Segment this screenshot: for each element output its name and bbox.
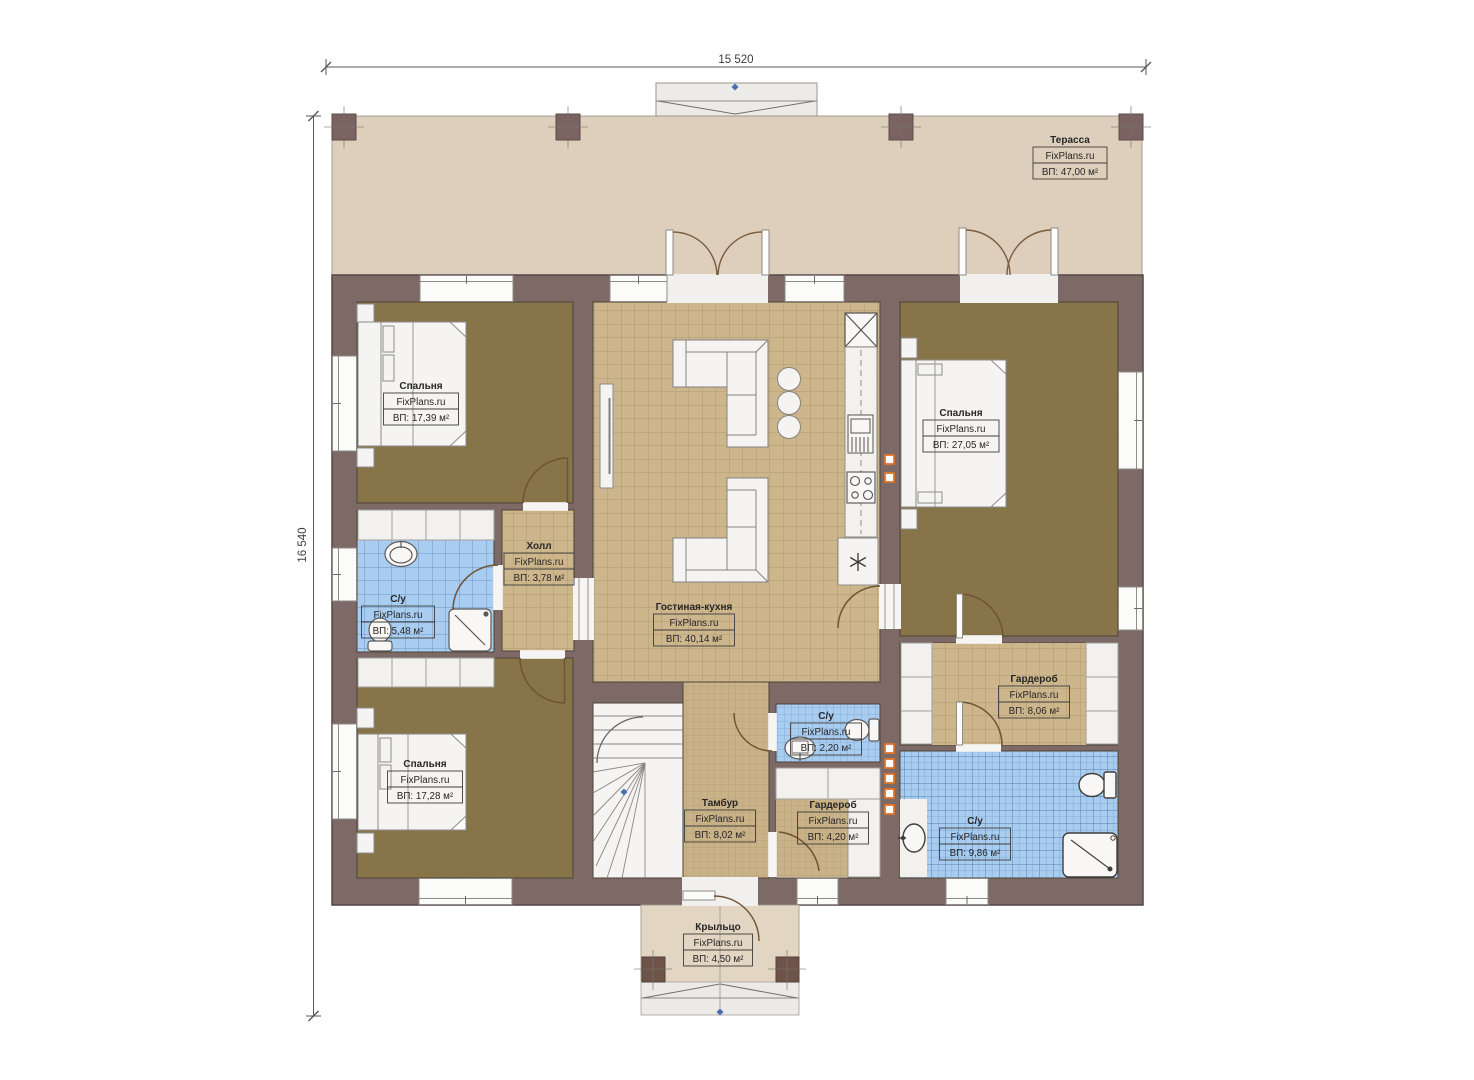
svg-text:ВП: 47,00 м²: ВП: 47,00 м² [1042, 167, 1099, 178]
svg-text:С/у: С/у [818, 711, 834, 722]
svg-text:С/у: С/у [967, 816, 983, 827]
svg-text:ВП: 3,78 м²: ВП: 3,78 м² [514, 573, 566, 584]
svg-text:ВП: 17,28 м²: ВП: 17,28 м² [397, 791, 454, 802]
svg-text:Гардероб: Гардероб [809, 799, 856, 811]
svg-text:Гардероб: Гардероб [1010, 673, 1057, 685]
svg-text:15 520: 15 520 [718, 54, 753, 66]
svg-text:ВП: 9,86 м²: ВП: 9,86 м² [950, 848, 1002, 859]
svg-text:16 540: 16 540 [297, 527, 309, 562]
svg-text:С/у: С/у [390, 594, 406, 605]
svg-text:ВП: 17,39 м²: ВП: 17,39 м² [393, 413, 450, 424]
svg-text:FixPlans.ru: FixPlans.ru [401, 775, 450, 786]
svg-text:Тамбур: Тамбур [702, 797, 738, 809]
svg-text:Холл: Холл [526, 541, 551, 552]
svg-text:FixPlans.ru: FixPlans.ru [1046, 151, 1095, 162]
svg-text:FixPlans.ru: FixPlans.ru [696, 814, 745, 825]
svg-text:Гостиная-кухня: Гостиная-кухня [656, 602, 733, 613]
svg-text:FixPlans.ru: FixPlans.ru [397, 397, 446, 408]
svg-text:Крыльцо: Крыльцо [695, 922, 741, 933]
svg-text:FixPlans.ru: FixPlans.ru [937, 424, 986, 435]
svg-text:FixPlans.ru: FixPlans.ru [1010, 690, 1059, 701]
svg-text:FixPlans.ru: FixPlans.ru [951, 832, 1000, 843]
svg-text:ВП: 4,20 м²: ВП: 4,20 м² [808, 832, 860, 843]
svg-text:FixPlans.ru: FixPlans.ru [670, 618, 719, 629]
svg-text:Спальня: Спальня [403, 759, 446, 770]
svg-text:ВП: 8,02 м²: ВП: 8,02 м² [695, 830, 747, 841]
svg-text:ВП: 27,05 м²: ВП: 27,05 м² [933, 440, 990, 451]
svg-text:ВП: 2,20 м²: ВП: 2,20 м² [801, 743, 853, 754]
svg-text:FixPlans.ru: FixPlans.ru [802, 727, 851, 738]
svg-text:ВП: 5,48 м²: ВП: 5,48 м² [373, 626, 425, 637]
svg-text:Терасса: Терасса [1050, 135, 1090, 146]
svg-text:FixPlans.ru: FixPlans.ru [374, 610, 423, 621]
svg-text:ВП: 4,50 м²: ВП: 4,50 м² [693, 954, 745, 965]
svg-text:FixPlans.ru: FixPlans.ru [515, 557, 564, 568]
svg-text:Спальня: Спальня [399, 381, 442, 392]
svg-text:ВП: 8,06 м²: ВП: 8,06 м² [1009, 706, 1061, 717]
svg-text:FixPlans.ru: FixPlans.ru [694, 938, 743, 949]
svg-text:FixPlans.ru: FixPlans.ru [809, 816, 858, 827]
svg-text:ВП: 40,14 м²: ВП: 40,14 м² [666, 634, 723, 645]
svg-text:Спальня: Спальня [939, 408, 982, 419]
